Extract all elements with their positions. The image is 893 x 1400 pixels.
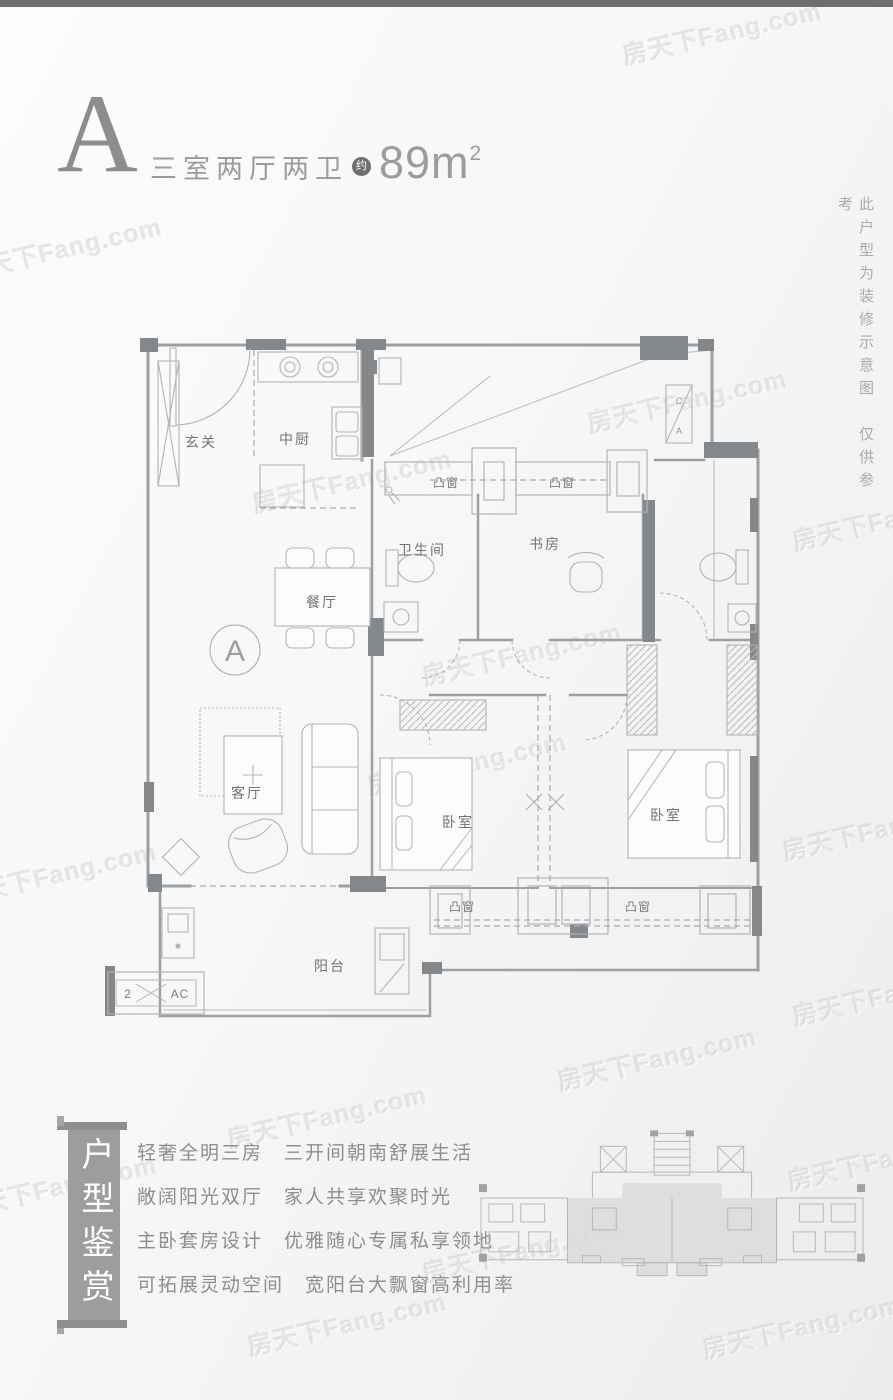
bay-window-label: 凸窗 bbox=[625, 900, 651, 914]
plan-area: 89m2 bbox=[379, 140, 482, 185]
ac-platform: 2 AC bbox=[108, 972, 204, 1014]
watermark: 房天下Fang.com bbox=[554, 1018, 761, 1099]
watermark: 房天下Fang.com bbox=[779, 788, 893, 869]
room-label-entry: 玄关 bbox=[185, 434, 217, 450]
bedroom1-furniture bbox=[380, 700, 486, 870]
room-label-study: 书房 bbox=[529, 536, 561, 552]
svg-text:A: A bbox=[225, 635, 245, 668]
plan-type-letter: A bbox=[57, 78, 138, 190]
building-key-plan bbox=[473, 1128, 871, 1288]
master-bath-fixtures bbox=[700, 550, 756, 632]
room-label-bedroom1: 卧室 bbox=[442, 814, 474, 830]
feature-line: 敞阔阳光双厅 家人共享欢聚时光 bbox=[137, 1185, 467, 1229]
area-value: 89m bbox=[379, 137, 470, 188]
svg-text:A: A bbox=[676, 426, 682, 436]
floorplan-page: { "colors":{ "top_bar":"#6e6e6e","banner… bbox=[0, 0, 893, 1400]
area-superscript: 2 bbox=[470, 142, 483, 165]
svg-text:AC: AC bbox=[171, 987, 190, 1001]
kitchen-counter bbox=[258, 352, 401, 507]
keyplan-outline bbox=[481, 1133, 863, 1275]
study-chair bbox=[568, 552, 604, 592]
disclaimer-note: 此户型为装修示意图 仅供参考 bbox=[834, 196, 876, 496]
plan-title: 三室两厅两卫 bbox=[150, 147, 348, 186]
feature-banner: 户型鉴赏 bbox=[68, 1130, 120, 1320]
banner-scroll-curl-top bbox=[57, 1116, 64, 1126]
approx-badge: 约 bbox=[352, 157, 371, 176]
room-label-kitchen: 中厨 bbox=[279, 431, 311, 447]
feature-lines: 轻奢全明三房 三开间朝南舒展生活 敞阔阳光双厅 家人共享欢聚时光 主卧套房设计 … bbox=[137, 1141, 467, 1317]
room-label-bath: 卫生间 bbox=[398, 542, 446, 558]
feature-line: 主卧套房设计 优雅随心专属私享领地 bbox=[137, 1229, 467, 1273]
balcony-fixtures bbox=[162, 908, 409, 994]
bathroom-fixtures bbox=[384, 487, 434, 632]
floor-plan: A bbox=[100, 330, 765, 1020]
ac-box: C A bbox=[666, 385, 692, 443]
unit-marker: A bbox=[210, 625, 260, 675]
feature-line: 轻奢全明三房 三开间朝南舒展生活 bbox=[137, 1141, 467, 1185]
bay-window-north bbox=[385, 448, 647, 514]
room-label-living: 客厅 bbox=[231, 785, 263, 801]
watermark: 房天下Fang.com bbox=[619, 0, 826, 72]
plan-title-row: 三室两厅两卫 约 89m2 bbox=[150, 146, 482, 186]
bay-window-label: 凸窗 bbox=[449, 900, 475, 914]
feature-line: 可拓展灵动空间 宽阳台大飘窗高利用率 bbox=[137, 1273, 467, 1317]
svg-text:C: C bbox=[676, 396, 683, 406]
room-label-dining: 餐厅 bbox=[306, 594, 338, 610]
watermark: 房天下Fang.com bbox=[699, 1286, 893, 1367]
bedroom2-furniture bbox=[627, 645, 757, 858]
top-bar bbox=[0, 0, 893, 7]
banner-scroll-curl-bottom bbox=[57, 1324, 64, 1334]
feature-banner-title: 户型鉴赏 bbox=[68, 1130, 120, 1320]
watermark: 房天下Fang.com bbox=[0, 208, 166, 289]
bay-window-label: 凸窗 bbox=[433, 476, 459, 490]
flexible-wall-marks bbox=[526, 794, 564, 810]
room-label-bedroom2: 卧室 bbox=[650, 807, 682, 823]
room-label-balcony: 阳台 bbox=[314, 958, 346, 974]
watermark: 房天下Fang.com bbox=[789, 953, 893, 1034]
plan-walls bbox=[148, 345, 758, 1016]
svg-text:2: 2 bbox=[124, 987, 132, 1001]
bay-window-label: 凸窗 bbox=[549, 476, 575, 490]
